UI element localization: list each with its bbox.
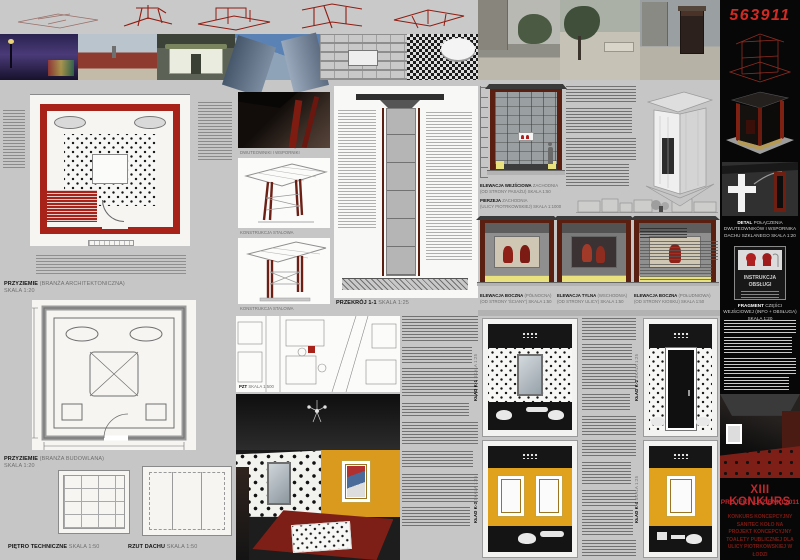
paragraph-text (402, 403, 469, 417)
steel-frame-lines (246, 164, 326, 222)
red-figure-art (582, 244, 593, 262)
window-art (571, 236, 617, 268)
klad-k3-panel (482, 440, 578, 558)
klad-text-column (582, 318, 636, 437)
plan-scale: SKALA 1:20 (4, 463, 35, 469)
photo-checker-bath (407, 34, 478, 80)
section-drawing (334, 86, 478, 298)
render-steel-structure-2 (238, 238, 330, 304)
tree-trunk (578, 36, 581, 60)
ceiling-band (649, 324, 712, 348)
elevation-title: ELEWACJA WEJŚCIOWA (480, 183, 532, 188)
paragraph-text (640, 264, 712, 282)
elevation-scale: SKALA 1:50 (528, 189, 551, 194)
washbasin-fixture (54, 116, 86, 129)
kiosk-roof (678, 6, 706, 11)
glass-panel (777, 176, 783, 208)
entry-elevation-drawing (490, 84, 562, 181)
wireframe-lines (730, 34, 790, 82)
frontage-label: PIERZEJA ZACHODNIA (ULICY PIOTRKOWSKIEJ)… (480, 198, 572, 210)
light-band (562, 275, 626, 282)
render-steel-1-label: KONSTRUKCJA STALOWA (240, 230, 332, 236)
elevation-title: ELEWACJA BOCZNA (480, 293, 523, 298)
ornament-icon (673, 453, 689, 459)
wall-mirror (267, 462, 291, 504)
paragraph-text (402, 422, 478, 446)
photo-white-pavilion (157, 34, 235, 80)
project-title: PROJEKT ŁAZIENKI 2011 (720, 499, 800, 506)
male-profile-icon (521, 135, 524, 139)
washbasin-fixture (540, 531, 564, 537)
section-steel-column (418, 108, 420, 276)
photo-facade-bw (320, 34, 407, 80)
photo-night-street (0, 34, 78, 80)
klad-label: KŁAD K-1 (473, 380, 478, 401)
red-figure-art (503, 246, 513, 263)
photo-street-kiosk (640, 0, 720, 80)
framed-mirror (498, 476, 524, 516)
elevation-north-label: ELEWACJA BOCZNA (PÓŁNOCNA) (OD STRONY 'Ś… (480, 293, 556, 305)
ornament-icon (522, 332, 538, 338)
plan-scale: SKALA 1:50 (69, 544, 100, 550)
plan-technical-floor (58, 470, 130, 534)
sketch-lines (394, 10, 464, 28)
right-panel: 563911 (720, 0, 800, 560)
right-text-block (724, 320, 796, 392)
klad-scale: SKALA 1:25 (634, 475, 639, 500)
shelf-fixture (671, 535, 685, 539)
sketch-lines (302, 4, 362, 28)
detail-label: DETAL POŁĄCZENIA DWUTEOWNIKÓW I WSPORNIK… (722, 220, 798, 239)
entrance-door (666, 348, 696, 430)
wainscot-band (488, 526, 572, 552)
plan-roof (142, 466, 232, 536)
red-carpet (720, 446, 800, 478)
section-annotations-left (338, 110, 376, 230)
door-opening (102, 219, 128, 229)
elevation-body (490, 89, 562, 170)
competition-board: PRZYZIEMIE (BRANŻA ARCHITEKTONICZNA) SKA… (0, 0, 800, 560)
lamp-light (8, 39, 14, 44)
paragraph-text (566, 138, 636, 160)
paragraph-text (566, 108, 632, 134)
photo-skyscrapers (235, 34, 320, 80)
wireframe-sketch-icon (388, 2, 470, 32)
instruction-sign: INSTRUKCJA OBSŁUGI (734, 246, 786, 300)
plan-subtitle: (BRANŻA BUDOWLANA) (40, 456, 104, 462)
paragraph-text (402, 507, 470, 527)
wainscot-band (488, 402, 572, 430)
framed-mirror (536, 476, 562, 516)
divider-band (478, 310, 720, 316)
building (642, 2, 668, 46)
klad-label: KŁAD K-3 (473, 501, 478, 522)
ornament-icon (522, 453, 538, 459)
plan-ground-arch-label: PRZYZIEMIE (BRANŻA ARCHITEKTONICZNA) SKA… (4, 281, 184, 295)
human-scale-figure-icon (547, 142, 553, 164)
light-box (496, 161, 504, 169)
plan-legend-red-band (47, 190, 97, 222)
section-annotations-right (426, 112, 472, 262)
interior-render-thumb (720, 394, 800, 478)
poster-art (347, 466, 365, 497)
monument (112, 46, 116, 58)
wireframe-sketch-strip (0, 0, 478, 34)
kiosk-3d-shapes (726, 92, 794, 154)
construction-plan-drawing (32, 300, 196, 450)
plan-roof-label: RZUT DACHU SKALA 1:50 (128, 544, 248, 551)
paragraph-text (582, 344, 632, 360)
pavilion-roof (165, 44, 227, 49)
detail-text: POŁĄCZENIA DWUTEOWNIKÓW I WSPORNIKA DACH… (724, 220, 796, 238)
section-title: PRZEKRÓJ 1-1 (336, 300, 377, 306)
chandelier-icon (302, 398, 332, 428)
plan-title: RZUT DACHU (128, 544, 165, 550)
section-roof-beam (356, 94, 444, 100)
wall-mirror (517, 354, 543, 396)
klad-label: KŁAD K-4 (634, 501, 639, 522)
elevation-scale: SKALA 1:50 (600, 299, 623, 304)
sketch-lines (198, 8, 270, 30)
plan-subtitle: (BRANŻA ARCHITEKTONICZNA) (40, 281, 125, 287)
render-label-text: DWUTEOWNIKI I WSPORNIKI (240, 150, 300, 155)
elevation-subtitle: (WSCHODNIA) (597, 293, 627, 298)
dimension-strip (480, 86, 488, 178)
render-steel-structure-1 (238, 158, 330, 228)
roof-outline (149, 472, 225, 530)
female-profile-icon (526, 135, 529, 139)
klad-label: KŁAD K-2 (634, 380, 639, 401)
washbasin-fixture (526, 407, 548, 412)
ceiling-band (488, 446, 572, 468)
wireframe-sketch-icon (8, 2, 108, 32)
toilet-fixture (496, 410, 512, 420)
klad-scale: SKALA 1:25 (473, 354, 478, 379)
sign-head-panel (738, 250, 782, 270)
elevation-note: (OD STRONY KIOSKU) (634, 299, 680, 304)
roof-soffit (238, 92, 298, 108)
framed-poster (726, 424, 742, 444)
site-plan-scale: SKALA 1:500 (248, 384, 274, 389)
paragraph-text (582, 364, 636, 390)
section-steel-column (382, 108, 384, 276)
wireframe-sketch-icon (190, 2, 278, 32)
site-plan: PZT SKALA 1:500 (236, 316, 400, 392)
figure-body (548, 147, 553, 164)
elevation-plinth (487, 170, 565, 175)
axon-shapes (646, 92, 714, 206)
elevation-scale: SKALA 1:50 (528, 299, 551, 304)
render-ibeams-corner (238, 92, 330, 148)
sketch-lines (18, 14, 98, 28)
klad-k4-panel (643, 440, 718, 558)
paragraph-text (402, 347, 472, 363)
ceiling-band (488, 324, 572, 348)
elevation-note: (OD STRONY 'ŚCIANY') (480, 299, 527, 304)
kiosk-3d-render (724, 88, 796, 160)
steel-cross-profile-horizontal (728, 186, 756, 193)
window-art (494, 236, 540, 268)
red-figure-art (596, 246, 606, 263)
ornament-icon (673, 332, 689, 338)
entrance-sign (518, 132, 534, 141)
paragraph-text (582, 318, 636, 340)
plan-scale: SKALA 1:50 (167, 544, 198, 550)
ceiling (236, 394, 400, 450)
instruction-sign-title: INSTRUKCJA OBSŁUGI (735, 273, 785, 290)
transom-band (485, 223, 549, 233)
paragraph-text (402, 451, 473, 469)
entry-steps (88, 240, 134, 246)
description-text-column (402, 316, 478, 560)
klad-k2-panel (643, 318, 718, 437)
paragraph-text (582, 440, 636, 458)
klad-k1-panel (482, 318, 578, 437)
paragraph-text (724, 337, 792, 355)
paragraph-text (402, 368, 478, 398)
klad-k4-side-label: KŁAD K-4 SKALA 1:25 (634, 440, 642, 558)
cistern-fixture (657, 532, 667, 540)
framed-poster (342, 461, 370, 502)
elevation-scale: SKALA 1:50 (681, 299, 704, 304)
site-plan-kiosk-marker (308, 346, 315, 353)
competition-number: 563911 (720, 7, 800, 25)
plan-scale: SKALA 1:20 (4, 288, 35, 294)
sketch-lines (124, 5, 172, 26)
wireframe-sketch-icon (292, 0, 370, 34)
toilet-fixture (696, 417, 710, 426)
bathtub (441, 38, 475, 60)
klad-k2-side-label: KŁAD K-2 SKALA 1:25 (634, 318, 642, 437)
paragraph-text (724, 320, 796, 334)
render-label-text: KONSTRUKCJA STALOWA (240, 306, 293, 311)
washbasin-fixture (134, 116, 166, 129)
plan-title: PRZYZIEMIE (4, 281, 38, 287)
detail-title: DETAL (737, 220, 752, 225)
diamond-tile-wall (649, 348, 712, 430)
elevation-subtitle: (POŁUDNIOWA) (679, 293, 711, 298)
elevation-title: ELEWACJA TYLNA (557, 293, 596, 298)
steel-frame-lines (248, 242, 326, 301)
elevation-body (557, 220, 631, 282)
roof-connection-detail-drawing (722, 162, 798, 216)
building-corner (478, 0, 508, 50)
toilet-fixture (518, 533, 536, 544)
paragraph-text (582, 394, 630, 412)
heading-text (640, 228, 687, 238)
paragraph-text (582, 462, 631, 486)
fragment-title: FRAGMENT (738, 303, 764, 308)
toilet-fixture (548, 410, 564, 420)
ceiling-band (649, 446, 712, 468)
site-plan-label: PZT SKALA 1:500 (239, 384, 274, 390)
plan-annotation-text (198, 102, 232, 160)
stone-bench (604, 42, 634, 52)
paragraph-text (582, 416, 636, 436)
klad-text-column (582, 440, 636, 558)
steel-cross-profile-vertical (738, 174, 745, 212)
diamond-tile-wall (488, 348, 572, 402)
elevation-text-block (566, 86, 636, 190)
wireframe-sketch-icon (118, 0, 178, 34)
axon-text-block (640, 228, 718, 286)
elevation-east-drawing (557, 216, 631, 290)
chandelier-arms (308, 400, 327, 422)
red-ibeam (302, 96, 319, 148)
plan-ground-floor-architecture (30, 94, 190, 246)
frontage-title: PIERZEJA (480, 198, 501, 203)
kiosk-photomontage (680, 10, 704, 54)
roof-seam (172, 472, 173, 530)
lamp-post (10, 42, 12, 68)
plan-tech-floor-label: PIĘTRO TECHNICZNE SKALA 1:50 (8, 544, 148, 551)
site-plan-title: PZT (239, 384, 247, 389)
technical-grid (63, 475, 125, 529)
elevation-subtitle: ZACHODNIA (533, 183, 558, 188)
tile-inset (291, 521, 352, 553)
site-plan-drawing (236, 316, 400, 392)
photo-street-corner (478, 0, 560, 80)
framed-mirror (667, 476, 695, 516)
elevation-title: ELEWACJA BOCZNA (634, 293, 677, 298)
paragraph-text (582, 490, 636, 506)
red-figure-art (520, 245, 531, 263)
elevation-east-label: ELEWACJA TYLNA (WSCHODNIA) (OD STRONY UL… (557, 293, 633, 305)
klad-k1-side-label: KŁAD K-1 SKALA 1:25 (473, 318, 481, 437)
tree (518, 14, 552, 44)
elevation-south-label: ELEWACJA BOCZNA (POŁUDNIOWA) (OD STRONY … (634, 293, 716, 305)
section-roof-bracket (380, 100, 420, 108)
steel-frame-drawing (238, 238, 330, 304)
klad-k3-side-label: KŁAD K-3 SKALA 1:25 (473, 440, 481, 558)
elevation-note: (OD STRONY PASAŻU) (480, 189, 526, 194)
entry-elevation-label: ELEWACJA WEJŚCIOWA ZACHODNIA (OD STRONY … (480, 183, 572, 195)
neon-lights (48, 60, 74, 76)
magazine-rack (236, 467, 249, 560)
facade-relief (348, 50, 378, 66)
door-handle (688, 390, 690, 396)
kiosk-axonometric-render (640, 84, 718, 224)
paragraph-text (582, 510, 633, 536)
elevation-plinth (477, 282, 557, 286)
render-ibeams-label: DWUTEOWNIKI I WSPORNIKI (240, 150, 332, 156)
plan-annotation-text (3, 110, 25, 168)
paragraph-text (724, 358, 796, 374)
paragraph-text (724, 377, 789, 391)
tree (564, 6, 600, 40)
light-band (485, 275, 549, 282)
elevation-note: (OD STRONY ULICY) (557, 299, 599, 304)
frontage-scale: SKALA 1:1000 (533, 204, 561, 209)
section-foundation (342, 278, 468, 290)
frontage-subtitle: ZACHODNIA (502, 198, 527, 203)
site-plan-lines (238, 316, 396, 392)
sign-small-text (741, 291, 779, 299)
elevation-north-drawing (480, 216, 554, 290)
plan-notes-text (36, 255, 186, 275)
paragraph-text (566, 86, 636, 104)
photo-brick-square (78, 34, 157, 80)
plan-lines (32, 308, 184, 450)
paragraph-text (402, 316, 478, 342)
pavilion-door (191, 54, 201, 74)
elevation-plinth (554, 282, 634, 286)
brick-column (774, 172, 786, 212)
amber-wall (321, 450, 400, 516)
interior-render-main (236, 394, 400, 560)
render-label-text: KONSTRUKCJA STALOWA (240, 230, 293, 235)
steel-frame-drawing (238, 158, 330, 228)
transom-band (562, 223, 626, 233)
section-glass-wall (386, 108, 416, 276)
elevation-subtitle: (PÓŁNOCNA) (525, 293, 552, 298)
figure-head (548, 142, 552, 146)
wainscot-band (649, 526, 712, 552)
central-fixture (92, 154, 128, 184)
paragraph-text (402, 474, 478, 502)
elevation-body (480, 220, 554, 282)
toilet-fixture (686, 534, 702, 544)
photo-street-trees (560, 0, 640, 80)
section-label: PRZEKRÓJ 1-1 SKALA 1:25 (336, 300, 476, 307)
red-ibeam (289, 100, 303, 149)
amber-wall (649, 468, 712, 526)
kiosk-wireframe-render (726, 30, 794, 86)
cane-hook-icon (772, 252, 780, 268)
amber-wall (488, 468, 572, 526)
competition-description: KONKURS KONCEPCYJNY SANITEC KOŁO NA PROJ… (725, 514, 795, 559)
render-steel-2-label: KONSTRUKCJA STALOWA (240, 306, 332, 312)
plan-title: PIĘTRO TECHNICZNE (8, 544, 67, 550)
roof-seam (201, 472, 202, 530)
paragraph-text (640, 241, 718, 261)
dimension-line (30, 94, 190, 96)
plan-title: PRZYZIEMIE (4, 456, 38, 462)
toilet-fixture (651, 417, 665, 426)
klad-scale: SKALA 1:25 (634, 354, 639, 379)
female-profile-icon (744, 253, 758, 267)
klad-scale: SKALA 1:25 (473, 475, 478, 500)
paragraph-text (566, 164, 629, 188)
section-scale: SKALA 1:25 (378, 300, 409, 306)
paragraph-text (582, 540, 636, 558)
frontage-note: (ULICY PIOTRKOWSKIEJ) (480, 204, 532, 209)
plan-ground-floor-construction (32, 300, 196, 450)
